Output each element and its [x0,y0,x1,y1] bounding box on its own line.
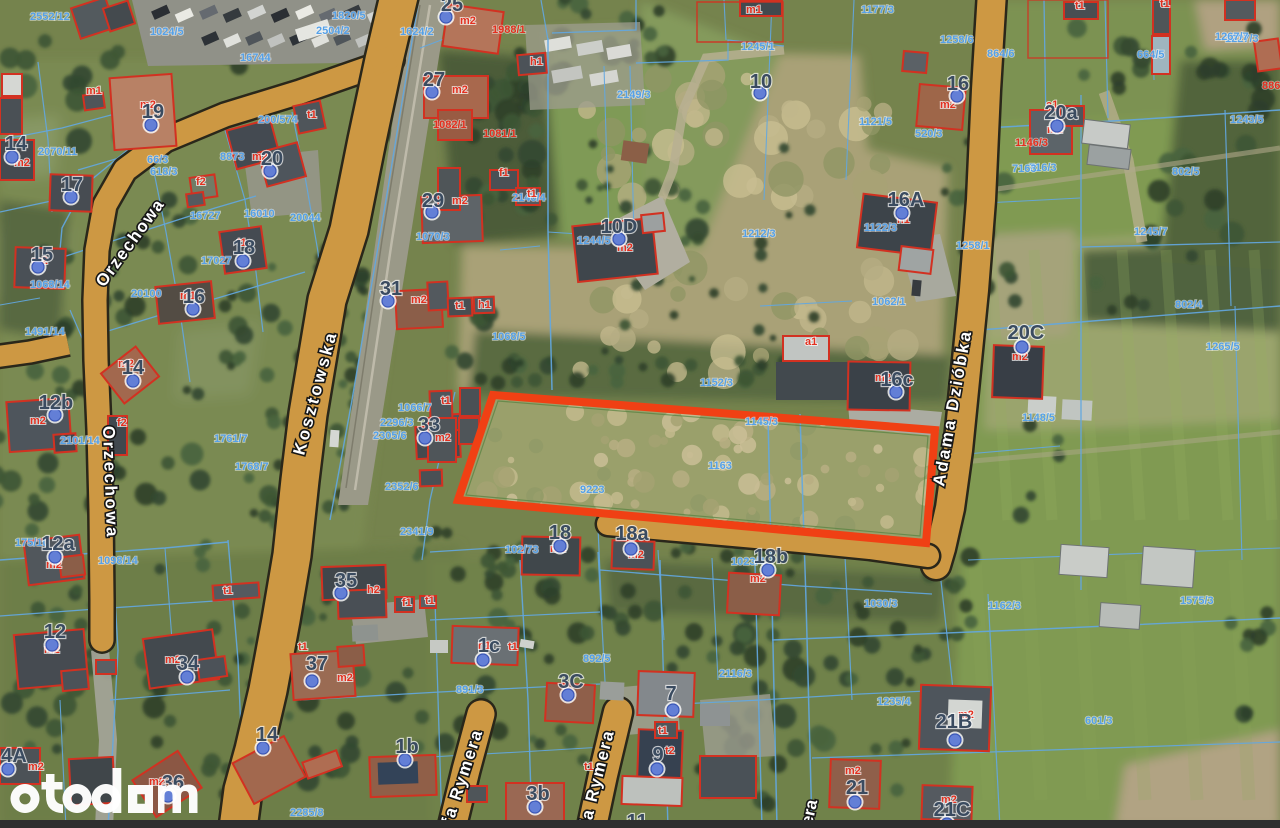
svg-text:1062/1: 1062/1 [872,296,906,308]
svg-text:1082/1: 1082/1 [433,119,467,131]
svg-text:886/8: 886/8 [1262,80,1280,92]
svg-text:1122/3: 1122/3 [864,222,897,234]
svg-text:9: 9 [652,744,663,766]
svg-text:18: 18 [549,522,571,544]
svg-text:1258/6: 1258/6 [940,34,974,46]
svg-text:1030/3: 1030/3 [864,598,898,610]
svg-text:m2: m2 [30,415,46,427]
svg-text:3b: 3b [526,783,549,805]
svg-text:f1: f1 [402,597,412,609]
svg-text:1c: 1c [478,635,500,657]
svg-text:t1: t1 [508,641,518,653]
svg-text:t1: t1 [298,641,308,653]
svg-text:16c: 16c [880,369,913,391]
svg-text:9223: 9223 [580,484,604,496]
svg-text:4A: 4A [1,745,27,767]
svg-text:27: 27 [423,69,445,91]
svg-text:33: 33 [418,414,440,436]
svg-text:16A: 16A [888,189,925,211]
svg-text:h2: h2 [367,584,380,596]
svg-text:16: 16 [183,286,205,308]
svg-text:2149/3: 2149/3 [617,89,651,101]
svg-text:18b: 18b [754,546,788,568]
svg-text:12b: 12b [39,392,73,414]
svg-text:20: 20 [261,148,283,170]
svg-text:1066/7: 1066/7 [398,402,432,414]
svg-text:17027: 17027 [201,255,232,267]
svg-text:t1: t1 [223,585,233,597]
svg-text:25: 25 [441,0,463,16]
svg-text:1768/7: 1768/7 [235,461,269,473]
svg-text:10: 10 [750,71,772,93]
svg-text:14: 14 [256,724,279,746]
svg-text:2504/2: 2504/2 [316,25,350,37]
svg-text:f1: f1 [499,167,509,179]
svg-text:m2: m2 [845,765,861,777]
svg-text:1491/14: 1491/14 [25,326,66,338]
svg-text:520/3: 520/3 [915,128,943,140]
svg-text:1068/5: 1068/5 [492,331,526,343]
svg-text:1177/3: 1177/3 [861,4,894,16]
svg-text:18: 18 [233,237,255,259]
svg-text:1081/1: 1081/1 [483,128,517,140]
svg-text:m2: m2 [411,294,427,306]
svg-text:891/3: 891/3 [456,684,484,696]
svg-text:802/4: 802/4 [1175,299,1203,311]
svg-text:21B: 21B [936,711,973,733]
svg-text:802/5: 802/5 [1172,166,1200,178]
svg-text:17: 17 [61,174,83,196]
svg-text:1267/7: 1267/7 [1215,31,1249,43]
svg-text:t1: t1 [307,109,317,121]
svg-text:2352/6: 2352/6 [385,481,419,493]
svg-text:12: 12 [44,621,66,643]
svg-text:1258/1: 1258/1 [956,240,990,252]
svg-text:3C: 3C [558,671,584,693]
svg-text:29: 29 [422,190,444,212]
svg-text:Orzechowa: Orzechowa [99,425,122,539]
svg-text:1265/5: 1265/5 [1206,341,1240,353]
svg-text:12a: 12a [41,533,75,555]
svg-text:601/3: 601/3 [1085,715,1113,727]
svg-text:m2: m2 [452,84,468,96]
svg-text:16744: 16744 [240,52,271,64]
svg-text:1243/5: 1243/5 [1230,114,1264,126]
svg-text:1152/3: 1152/3 [700,377,733,389]
svg-text:20044: 20044 [290,212,321,224]
svg-text:1988/1: 1988/1 [492,24,526,36]
svg-text:10D: 10D [601,216,638,238]
svg-text:7163: 7163 [1012,163,1036,175]
svg-text:1624/2: 1624/2 [400,26,434,38]
svg-text:14: 14 [5,133,28,155]
svg-text:864/6: 864/6 [987,48,1015,60]
svg-text:1820/5: 1820/5 [332,10,366,22]
svg-text:1098/14: 1098/14 [98,555,139,567]
svg-text:15: 15 [31,244,53,266]
svg-text:t1: t1 [527,188,537,200]
svg-text:1024/5: 1024/5 [150,26,184,38]
svg-text:t1: t1 [455,300,465,312]
svg-text:2101/14: 2101/14 [60,435,101,447]
svg-text:2296/3: 2296/3 [380,417,414,429]
svg-text:m1: m1 [86,85,102,97]
svg-text:1162/3: 1162/3 [988,600,1021,612]
svg-text:2070/11: 2070/11 [38,146,77,158]
svg-text:1235/4: 1235/4 [877,696,912,708]
svg-text:t1: t1 [425,595,435,607]
svg-text:20a: 20a [1044,102,1078,124]
svg-text:892/5: 892/5 [583,653,611,665]
svg-text:20100: 20100 [131,288,162,300]
svg-text:1761/7: 1761/7 [214,433,248,445]
svg-text:66/3: 66/3 [147,154,168,166]
svg-text:1145/3: 1145/3 [745,416,778,428]
svg-text:8873: 8873 [220,151,244,163]
svg-text:t1: t1 [658,725,668,737]
svg-text:21: 21 [846,777,868,799]
svg-text:m2: m2 [337,672,353,684]
svg-text:34: 34 [177,653,200,675]
svg-text:102/73: 102/73 [505,544,539,556]
svg-text:1b: 1b [395,736,418,758]
svg-text:200/574: 200/574 [258,114,299,126]
svg-text:7: 7 [665,683,676,705]
svg-text:20C: 20C [1008,322,1045,344]
svg-text:t1: t1 [1075,0,1085,12]
svg-text:t1: t1 [1160,0,1170,10]
svg-text:h1: h1 [478,299,491,311]
svg-text:m2: m2 [460,15,476,27]
svg-text:664/5: 664/5 [1137,49,1165,61]
svg-text:t1: t1 [441,395,451,407]
svg-text:18a: 18a [615,523,649,545]
svg-text:1163: 1163 [708,460,732,472]
svg-text:m1: m1 [746,4,762,16]
svg-text:m2: m2 [28,761,44,773]
svg-text:35: 35 [335,570,357,592]
svg-text:37: 37 [306,653,328,675]
svg-text:16727: 16727 [190,210,221,222]
svg-text:f2: f2 [196,176,206,188]
svg-text:14: 14 [122,357,145,379]
svg-text:2116/3: 2116/3 [719,668,752,680]
svg-text:1245/1: 1245/1 [741,41,775,53]
svg-text:16: 16 [947,73,969,95]
svg-text:2341/9: 2341/9 [400,526,434,538]
svg-text:a1: a1 [805,336,817,348]
svg-text:2305/6: 2305/6 [373,430,407,442]
svg-text:1212/3: 1212/3 [742,228,776,240]
svg-text:1070/3: 1070/3 [416,231,450,243]
svg-text:16010: 16010 [244,208,275,220]
svg-text:1245/7: 1245/7 [1134,226,1168,238]
svg-text:19: 19 [142,101,164,123]
svg-text:21C: 21C [934,799,971,821]
svg-text:1068/14: 1068/14 [30,279,71,291]
svg-text:1146/3: 1146/3 [1015,137,1048,149]
svg-text:2552/12: 2552/12 [30,11,70,23]
svg-text:618/3: 618/3 [150,166,178,178]
svg-text:1121/5: 1121/5 [859,116,892,128]
svg-text:m2: m2 [452,195,468,207]
svg-text:h1: h1 [530,56,543,68]
svg-text:31: 31 [380,278,402,300]
svg-text:1575/3: 1575/3 [1180,595,1214,607]
svg-text:1148/5: 1148/5 [1022,412,1055,424]
svg-text:t2: t2 [665,745,675,757]
svg-text:2285/8: 2285/8 [290,807,324,819]
